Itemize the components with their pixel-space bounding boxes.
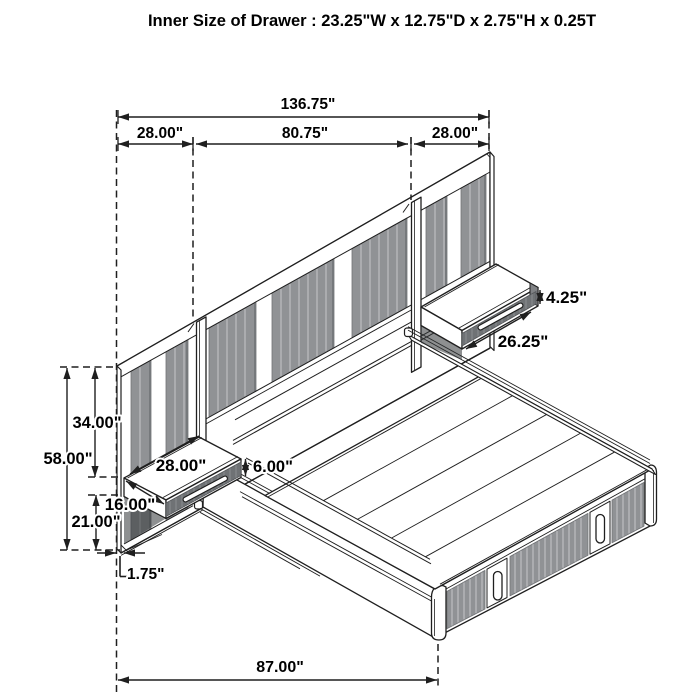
svg-text:87.00": 87.00" (256, 659, 304, 676)
svg-text:28.00": 28.00" (432, 125, 478, 142)
svg-text:58.00": 58.00" (43, 450, 92, 468)
svg-text:80.75": 80.75" (282, 125, 328, 142)
svg-text:28.00": 28.00" (156, 456, 207, 475)
svg-text:Inner Size of Drawer : 23.25"W: Inner Size of Drawer : 23.25"W x 12.75"D… (148, 12, 596, 30)
svg-text:16.00": 16.00" (105, 495, 156, 514)
svg-text:28.00": 28.00" (137, 125, 183, 142)
svg-text:136.75": 136.75" (281, 96, 336, 113)
svg-text:4.25": 4.25" (546, 288, 587, 307)
svg-text:26.25": 26.25" (498, 332, 549, 351)
svg-text:34.00": 34.00" (72, 414, 121, 432)
svg-text:21.00": 21.00" (71, 513, 120, 531)
svg-text:6.00": 6.00" (253, 458, 293, 476)
svg-text:1.75": 1.75" (127, 566, 165, 583)
